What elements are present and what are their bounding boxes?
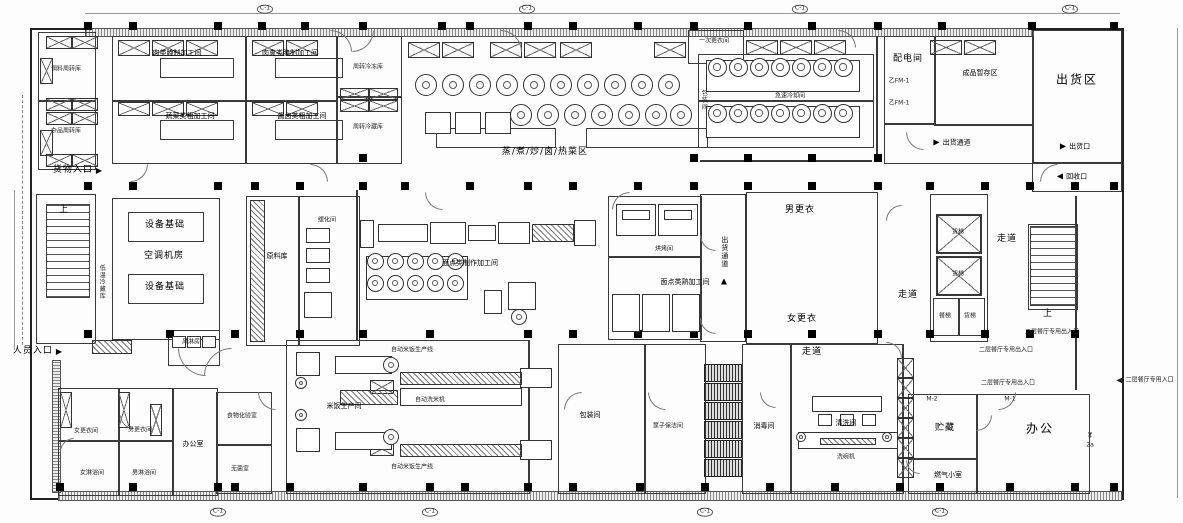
grid-bubble-top-2: C-1: [519, 5, 535, 14]
column-marker: [808, 182, 816, 190]
column-marker: [1026, 182, 1034, 190]
label-power-room: 配电间: [893, 55, 923, 65]
wall-segment: [356, 190, 358, 340]
hatched-equipment-icon: [92, 340, 132, 354]
floor-plan: 货物入口 ▶ 人员入口 ▶ 调料周转库 杂品周转库 肉类腌制加工间 肉禽类腌制加…: [0, 0, 1183, 523]
label-corridor-3: 走道: [802, 348, 822, 358]
column-marker: [524, 22, 532, 30]
room-outline: [644, 344, 706, 494]
equipment-icon: [378, 224, 428, 242]
column-marker: [744, 22, 752, 30]
label-rice-line-1: 自动米饭生产线: [391, 348, 433, 355]
label-noodle-make: 面点类制作加工间: [442, 260, 498, 268]
sterilizer-unit-icon: [704, 459, 742, 477]
top-dimension-line: [85, 13, 1120, 14]
label-upper-note-1: 二层餐厅专用出入口: [1025, 330, 1079, 337]
label-thaw-room: 缓化间: [318, 218, 336, 225]
column-marker: [938, 22, 946, 30]
label-door-m1: M-1: [1004, 397, 1015, 404]
cookpot-icon: [427, 275, 444, 292]
cookpot-icon: [750, 58, 769, 77]
arrow-right-icon: ▶: [1060, 143, 1066, 152]
label-men-change-room: 男更衣间: [128, 428, 152, 435]
cookpot-icon: [367, 275, 384, 292]
column-marker: [296, 330, 304, 338]
column-marker: [766, 483, 774, 491]
column-marker: [926, 330, 934, 338]
cookpot-icon: [564, 104, 586, 126]
equipment-icon: [498, 222, 530, 244]
equipment-icon: [862, 414, 876, 426]
stamp-2a: 2a: [1086, 443, 1094, 450]
equipment-icon: [360, 220, 374, 248]
label-corridor-2: 走道: [997, 235, 1017, 245]
column-marker: [56, 483, 64, 491]
room-outline: [275, 120, 343, 140]
column-marker: [1071, 182, 1079, 190]
column-marker: [438, 22, 446, 30]
column-marker: [690, 154, 698, 162]
worktable-icon: [897, 398, 914, 418]
label-meat-proc-1: 肉类腌制加工间: [153, 50, 202, 58]
label-air-shower: 风淋房: [182, 340, 200, 347]
worktable-icon: [46, 36, 72, 49]
label-up-1: 上: [59, 206, 69, 216]
label-turnover-freezer: 周转冷冻库: [353, 65, 383, 72]
label-office-room: 办公室: [183, 441, 204, 449]
cookpot-icon: [813, 58, 832, 77]
column-marker: [426, 483, 434, 491]
column-marker: [569, 182, 577, 190]
cookpot-icon: [834, 58, 853, 77]
cookpot-icon: [367, 253, 384, 270]
label-raw-store: 原料库: [267, 253, 288, 261]
grid-bubble-bot-3: C-1: [697, 508, 713, 517]
hatched-equipment-icon: [820, 438, 876, 445]
column-marker: [690, 22, 698, 30]
column-marker: [1110, 483, 1118, 491]
grid-bubble-top-3: C-1: [792, 5, 808, 14]
worktable-icon: [897, 418, 914, 438]
sterilizer-unit-icon: [704, 383, 742, 401]
grid-bubble-bot-2: C-1: [422, 508, 438, 517]
worktable-icon: [60, 392, 72, 428]
cookpot-icon: [415, 74, 437, 96]
cookpot-icon: [750, 104, 769, 123]
column-marker: [569, 330, 577, 338]
column-marker: [401, 182, 409, 190]
hatched-equipment-icon: [250, 200, 265, 342]
cookpot-icon: [792, 104, 811, 123]
worktable-icon: [369, 100, 398, 112]
column-marker: [214, 22, 222, 30]
column-marker: [214, 182, 222, 190]
label-gas-room: 燃气小室: [934, 472, 962, 480]
worktable-icon: [442, 42, 474, 58]
label-food-elev: 餐梯: [939, 314, 951, 321]
upper-entry-text: 二层餐厅专用入口: [1126, 378, 1174, 385]
grid-bubble-top-4: C-1: [1062, 5, 1078, 14]
column-marker: [466, 182, 474, 190]
stairs-icon: [1030, 226, 1076, 306]
cookpot-icon: [295, 377, 307, 389]
cookpot-icon: [591, 104, 613, 126]
cookpot-icon: [407, 275, 424, 292]
label-disinfect: 消毒间: [754, 423, 775, 431]
cookpot-icon: [550, 74, 572, 96]
cookpot-icon: [427, 253, 444, 270]
label-upper-note-3: 二层餐厅专用出入口: [981, 381, 1035, 388]
arrow-right-icon: ▶: [56, 348, 63, 357]
arrow-up-icon: ▲: [721, 278, 727, 287]
wall-segment: [876, 36, 878, 162]
label-office-area: 办公: [1026, 422, 1054, 435]
equipment-icon: [306, 268, 330, 283]
cookpot-icon: [537, 104, 559, 126]
cookpot-icon: [771, 104, 790, 123]
equipment-icon: [622, 210, 650, 220]
column-marker: [1028, 22, 1036, 30]
equipment-icon: [612, 294, 640, 332]
column-marker: [874, 182, 882, 190]
label-store-tl-2: 杂品周转库: [51, 129, 81, 136]
room-outline: [160, 58, 234, 78]
grid-bubble-top-1: C-1: [257, 5, 273, 14]
hatched-equipment-icon: [532, 224, 574, 242]
label-sterile-room: 无菌室: [231, 467, 249, 474]
column-marker: [129, 483, 137, 491]
cookpot-icon: [882, 432, 892, 442]
equipment-icon: [306, 228, 330, 243]
column-marker: [359, 330, 367, 338]
column-marker: [926, 182, 934, 190]
equipment-icon: [664, 210, 692, 220]
goods-entrance-label: 货物入口 ▶: [53, 166, 103, 176]
label-rice-line-2: 自动米饭生产线: [391, 465, 433, 472]
label-noodle-cooked: 面点类熟加工间: [661, 279, 710, 287]
label-men-change: 男更衣: [785, 206, 815, 216]
worktable-icon: [897, 438, 914, 458]
label-women-change: 女更衣: [787, 315, 817, 325]
cookpot-icon: [618, 104, 640, 126]
grid-bubble-bot-1: C-1: [210, 508, 226, 517]
tilting-kettle-icon: [425, 112, 451, 134]
label-storage: 贮藏: [935, 424, 955, 434]
label-lt-cold: 低温冷藏库: [98, 265, 105, 300]
label-wash-room: 清洗间: [836, 420, 857, 428]
column-marker: [359, 22, 367, 30]
equipment-icon: [818, 414, 832, 426]
column-marker: [129, 182, 137, 190]
cookpot-icon: [387, 253, 404, 270]
worktable-icon: [72, 98, 98, 111]
cookpot-icon: [813, 104, 832, 123]
label-freight-elev-3: 货梯: [964, 314, 976, 321]
column-marker: [874, 154, 882, 162]
column-marker: [744, 154, 752, 162]
column-marker: [981, 330, 989, 338]
room-outline: [586, 128, 708, 148]
worktable-icon: [560, 42, 592, 58]
worktable-icon: [46, 98, 72, 111]
room-outline: [160, 120, 234, 140]
cookpot-icon: [604, 74, 626, 96]
equipment-icon: [306, 248, 330, 263]
label-women-change-room: 女更衣间: [74, 429, 98, 436]
cookpot-icon: [708, 104, 727, 123]
column-marker: [286, 483, 294, 491]
column-marker: [936, 483, 944, 491]
column-marker: [636, 483, 644, 491]
equipment-icon: [520, 440, 552, 460]
column-marker: [129, 22, 137, 30]
label-shipping-corridor-v: 出货通道: [720, 236, 728, 268]
label-women-shower: 女淋浴间: [80, 471, 104, 478]
column-marker: [831, 483, 839, 491]
label-up-2: 上: [1043, 310, 1053, 320]
sterilizer-unit-icon: [704, 421, 742, 439]
worktable-icon: [654, 42, 686, 58]
worktable-icon: [118, 40, 150, 56]
column-marker: [569, 483, 577, 491]
sterilizer-unit-icon: [704, 402, 742, 420]
column-marker: [84, 330, 92, 338]
label-shipping-port: ▶ 出货口: [1060, 143, 1090, 152]
label-first-changing: 一次更衣间: [699, 39, 729, 46]
equipment-icon: [520, 368, 552, 388]
label-dishwasher: 洗碗机: [837, 455, 855, 462]
column-marker: [874, 22, 882, 30]
column-marker: [359, 182, 367, 190]
equipment-icon: [484, 290, 502, 314]
right-dimension-line: [1177, 28, 1178, 498]
room-outline: [558, 344, 646, 494]
label-shipping-area: 出货区: [1056, 73, 1098, 86]
label-store-tl-1: 调料周转库: [51, 67, 81, 74]
column-marker: [524, 330, 532, 338]
cookpot-icon: [383, 357, 399, 373]
cookpot-icon: [383, 429, 399, 445]
staff-entrance-label: 人员入口 ▶: [13, 347, 63, 357]
column-marker: [690, 182, 698, 190]
label-upper-entry: ◀ 二层餐厅专用入口: [1116, 377, 1173, 386]
label-sauce-proc: 酱卤类粗加工间: [278, 113, 327, 121]
label-rice-washer: 自动洗米机: [415, 398, 445, 405]
column-marker: [744, 182, 752, 190]
column-marker: [1110, 22, 1118, 30]
worktable-icon: [340, 100, 369, 112]
column-marker: [231, 483, 239, 491]
worktable-icon: [408, 42, 440, 58]
boundary-dashed-line: [22, 95, 23, 345]
room-outline: [275, 58, 343, 78]
label-turnover-cold: 周转冷藏库: [353, 125, 383, 132]
label-corridor-1: 走道: [898, 291, 918, 301]
equipment-icon: [304, 292, 332, 318]
column-marker: [634, 22, 642, 30]
cookpot-icon: [447, 275, 464, 292]
column-marker: [466, 22, 474, 30]
label-door-fm-2: 乙FM-1: [889, 101, 910, 108]
cookpot-icon: [523, 74, 545, 96]
cookpot-icon: [469, 74, 491, 96]
cookpot-icon: [834, 104, 853, 123]
label-upper-note-2: 二层餐厅专用出入口: [979, 348, 1033, 355]
worktable-icon: [780, 40, 812, 55]
grid-bubble-bot-4: C-1: [932, 508, 948, 517]
worktable-icon: [369, 88, 398, 100]
label-freight-elev-2: 货梯: [952, 272, 964, 279]
label-shipping-corridor-h: ▶ 出货通道: [933, 139, 970, 148]
column-marker: [84, 182, 92, 190]
column-marker: [808, 22, 816, 30]
worktable-icon: [964, 40, 996, 55]
label-packing-bottom: 包装间: [580, 412, 601, 420]
worktable-icon: [524, 42, 556, 58]
cookpot-icon: [645, 104, 667, 126]
column-marker: [701, 483, 709, 491]
sterilizer-unit-icon: [704, 440, 742, 458]
arrow-left-icon: ◀: [1116, 377, 1122, 386]
column-marker: [426, 330, 434, 338]
equipment-icon: [672, 294, 700, 332]
cookpot-icon: [387, 275, 404, 292]
left-dimension-line: [14, 190, 15, 350]
goods-entrance-text: 货物入口: [53, 166, 93, 176]
cookpot-icon: [708, 58, 727, 77]
column-marker: [359, 483, 367, 491]
column-marker: [258, 22, 266, 30]
column-marker: [359, 154, 367, 162]
stamp-4: 4: [1088, 433, 1092, 440]
cookpot-icon: [670, 104, 692, 126]
cookpot-icon: [442, 74, 464, 96]
cookpot-icon: [658, 74, 680, 96]
worktable-icon: [118, 102, 150, 116]
column-marker: [874, 330, 882, 338]
column-marker: [231, 330, 239, 338]
worktable-icon: [46, 112, 72, 125]
label-basket-clean: 筐子保洁间: [653, 424, 683, 431]
label-door-m2: M-2: [926, 397, 937, 404]
column-marker: [461, 483, 469, 491]
shipping-port-text: 出货口: [1069, 143, 1090, 151]
shipping-corridor-text: 出货通道: [943, 139, 971, 147]
cookpot-icon: [792, 58, 811, 77]
equipment-icon: [468, 225, 496, 241]
hatched-equipment-icon: [400, 372, 522, 385]
equipment-icon: [202, 336, 216, 348]
wall-segment: [528, 340, 530, 492]
cookpot-icon: [771, 58, 790, 77]
worktable-icon: [72, 112, 98, 125]
label-veg-proc: 蔬菜类粗加工间: [166, 113, 215, 121]
tilting-kettle-icon: [485, 112, 511, 134]
hatched-equipment-icon: [400, 444, 522, 457]
label-door-fm-1: 乙FM-1: [889, 79, 910, 86]
column-marker: [524, 182, 532, 190]
label-hot-area: 蒸/煮/炒/卤/热菜区: [502, 148, 588, 158]
cookpot-icon: [496, 74, 518, 96]
column-marker: [808, 154, 816, 162]
worktable-icon: [930, 40, 962, 55]
column-marker: [84, 22, 92, 30]
wall-segment: [700, 160, 872, 162]
tilting-kettle-icon: [455, 112, 481, 134]
label-men-shower: 男淋浴间: [132, 471, 156, 478]
equipment-icon: [658, 204, 698, 236]
column-marker: [744, 330, 752, 338]
label-recycle-port: ◀ 回收口: [1057, 173, 1087, 182]
equipment-icon: [642, 294, 670, 332]
label-food-lab: 食物化验室: [227, 414, 257, 421]
column-marker: [1110, 182, 1118, 190]
arrow-right-icon: ▶: [96, 167, 103, 176]
sterilizer-unit-icon: [704, 364, 742, 382]
worktable-icon: [897, 358, 914, 378]
arrow-left-icon: ◀: [1057, 173, 1063, 182]
recycle-port-text: 回收口: [1066, 173, 1087, 181]
cookpot-icon: [510, 104, 532, 126]
label-bake-room: 烘烤间: [655, 247, 673, 254]
column-marker: [981, 182, 989, 190]
worktable-icon: [72, 36, 98, 49]
equipment-icon: [574, 220, 596, 246]
column-marker: [896, 483, 904, 491]
label-finished-storage: 成品暂存区: [963, 70, 998, 78]
label-quick-cooling: 急速冷却间: [775, 94, 805, 101]
label-rice-room: 米饭生产间: [327, 403, 362, 411]
label-freight-elev-1: 货梯: [952, 230, 964, 237]
column-marker: [524, 483, 532, 491]
column-marker: [301, 22, 309, 30]
column-marker: [569, 22, 577, 30]
cookpot-icon: [796, 432, 806, 442]
equipment-icon: [812, 396, 882, 412]
equipment-icon: [296, 352, 320, 376]
cookpot-icon: [729, 104, 748, 123]
room-outline: [742, 344, 792, 494]
column-marker: [634, 182, 642, 190]
equipment-icon: [296, 428, 320, 452]
worktable-icon: [897, 378, 914, 398]
worktable-icon: [340, 88, 369, 100]
label-ac-room: 空调机房: [144, 252, 184, 262]
staff-entrance-text: 人员入口: [13, 347, 53, 357]
worktable-icon: [746, 40, 778, 55]
column-marker: [214, 483, 222, 491]
column-marker: [251, 182, 259, 190]
stairs-icon: [46, 204, 90, 298]
cookpot-icon: [577, 74, 599, 96]
column-marker: [808, 330, 816, 338]
column-marker: [296, 182, 304, 190]
cookpot-icon: [729, 58, 748, 77]
equipment-icon: [508, 282, 536, 310]
column-marker: [1006, 483, 1014, 491]
label-equip-base-1: 设备基础: [145, 221, 185, 231]
column-marker: [1071, 483, 1079, 491]
arrow-right-icon: ▶: [933, 139, 939, 148]
cookpot-icon: [511, 309, 527, 325]
room-outline: [118, 440, 174, 496]
equipment-icon: [430, 222, 466, 244]
cookpot-icon: [295, 409, 307, 421]
label-meat-proc-2: 肉禽类腌制加工间: [262, 50, 318, 58]
room-outline: [976, 394, 1090, 494]
cookpot-icon: [407, 253, 424, 270]
cookpot-icon: [631, 74, 653, 96]
